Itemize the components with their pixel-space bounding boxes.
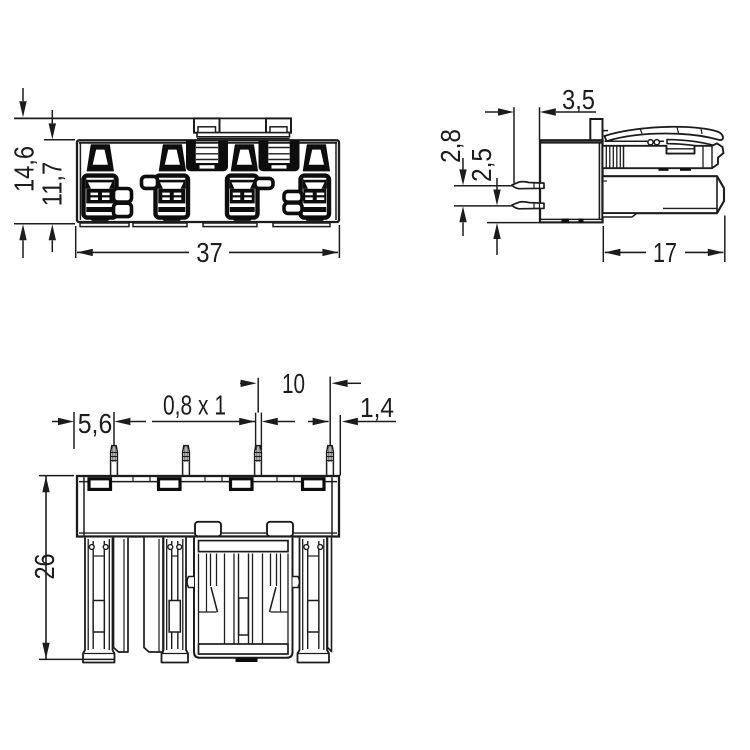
svg-text:17: 17 xyxy=(653,237,677,268)
svg-text:2,5: 2,5 xyxy=(466,148,497,182)
svg-text:11,7: 11,7 xyxy=(36,162,67,207)
svg-text:5,6: 5,6 xyxy=(78,408,113,439)
svg-text:10: 10 xyxy=(282,368,305,399)
svg-text:26: 26 xyxy=(29,554,60,580)
svg-text:2,8: 2,8 xyxy=(435,129,466,163)
svg-text:37: 37 xyxy=(196,237,223,268)
svg-text:1,4: 1,4 xyxy=(360,392,394,423)
svg-text:0,8 x 1: 0,8 x 1 xyxy=(163,389,226,420)
svg-text:14,6: 14,6 xyxy=(8,146,39,192)
svg-text:3,5: 3,5 xyxy=(562,84,595,115)
